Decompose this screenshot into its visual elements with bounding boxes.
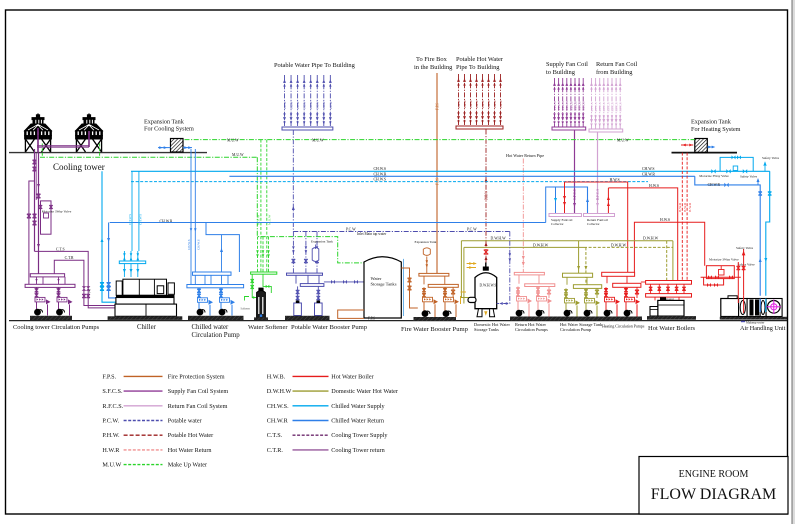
- svg-text:CH.W.R: CH.W.R: [374, 172, 387, 176]
- svg-text:P.H.W: P.H.W: [485, 190, 489, 200]
- svg-text:P.C.W: P.C.W: [289, 101, 293, 109]
- svg-text:F.P.S: F.P.S: [368, 317, 375, 321]
- svg-text:Potable Hot Water: Potable Hot Water: [456, 56, 504, 63]
- svg-text:P.H.W: P.H.W: [469, 100, 473, 108]
- svg-text:P.C.W: P.C.W: [316, 101, 320, 109]
- svg-text:P.C.W: P.C.W: [467, 227, 477, 231]
- svg-text:FLOW DIAGRAM: FLOW DIAGRAM: [651, 486, 776, 503]
- svg-text:D.W.H.W: D.W.H.W: [643, 237, 659, 241]
- svg-text:H.W.R: H.W.R: [678, 202, 682, 212]
- svg-text:Expansion Tank: Expansion Tank: [144, 119, 185, 126]
- svg-text:P.C.W: P.C.W: [329, 101, 333, 109]
- svg-text:S.F.C.S: S.F.C.S: [582, 101, 586, 110]
- svg-text:M.U.W: M.U.W: [617, 139, 629, 143]
- svg-text:Safety Valve: Safety Valve: [736, 246, 754, 250]
- svg-text:P.C.W: P.C.W: [346, 227, 356, 231]
- svg-text:Cooling Tower return: Cooling Tower return: [331, 447, 384, 454]
- svg-text:M.U.W: M.U.W: [312, 139, 324, 143]
- svg-text:Safety Valve: Safety Valve: [740, 175, 758, 179]
- svg-text:M.U.W: M.U.W: [268, 214, 272, 225]
- svg-text:Hot Water Boilers: Hot Water Boilers: [648, 325, 695, 332]
- svg-text:CH.W.S: CH.W.S: [197, 239, 201, 250]
- svg-text:P.C.W: P.C.W: [303, 101, 307, 109]
- svg-text:For Cooling System: For Cooling System: [144, 126, 194, 133]
- svg-text:F.P.S.: F.P.S.: [102, 373, 116, 380]
- svg-text:D.W.H.W: D.W.H.W: [267, 388, 292, 395]
- svg-text:CH.W.S: CH.W.S: [187, 239, 191, 250]
- svg-text:Chilled water: Chilled water: [192, 324, 230, 331]
- svg-text:Cooling Tower Supply: Cooling Tower Supply: [331, 432, 388, 439]
- svg-text:P.H.W: P.H.W: [487, 100, 491, 108]
- svg-text:Domestic Water Hot Water: Domestic Water Hot Water: [331, 388, 398, 395]
- svg-text:Inlet Main tap water: Inlet Main tap water: [357, 232, 387, 236]
- svg-text:Hot Water Return: Hot Water Return: [168, 447, 212, 454]
- svg-text:S.F.C.S.: S.F.C.S.: [102, 388, 123, 395]
- svg-text:P.H.W: P.H.W: [463, 100, 467, 108]
- svg-text:Safety Valve: Safety Valve: [738, 263, 756, 267]
- svg-text:Chilled Water Supply: Chilled Water Supply: [331, 403, 385, 410]
- svg-text:P.C.W: P.C.W: [296, 101, 300, 109]
- svg-text:R.F.C.S.: R.F.C.S.: [102, 403, 123, 410]
- svg-text:Cooling tower Circulation Pump: Cooling tower Circulation Pumps: [13, 324, 100, 331]
- svg-text:CH.W.S: CH.W.S: [642, 167, 655, 171]
- svg-text:Supply Fan Coil: Supply Fan Coil: [546, 61, 588, 68]
- svg-text:D.W.H.W: D.W.H.W: [491, 237, 507, 241]
- svg-text:D.W.H.W.S.: D.W.H.W.S.: [480, 284, 498, 288]
- svg-text:Expansion Tank: Expansion Tank: [691, 119, 732, 126]
- svg-text:Softener: Softener: [241, 308, 251, 311]
- svg-text:P.C.W: P.C.W: [283, 101, 287, 109]
- svg-text:CH.W.S: CH.W.S: [128, 214, 132, 225]
- svg-text:CH.W.S.: CH.W.S.: [267, 403, 289, 410]
- svg-text:Motorize 3Way Valve: Motorize 3Way Valve: [699, 174, 729, 178]
- svg-text:C.T.R: C.T.R: [65, 256, 74, 260]
- svg-text:Collector: Collector: [551, 222, 564, 226]
- svg-text:Return Fan Coil System: Return Fan Coil System: [168, 403, 228, 410]
- svg-text:H.W.S: H.W.S: [610, 178, 620, 182]
- svg-text:P.H.W.: P.H.W.: [102, 432, 120, 439]
- svg-text:H.W.B.: H.W.B.: [267, 373, 286, 380]
- svg-text:Fire Water Booster Pump: Fire Water Booster Pump: [401, 326, 469, 333]
- svg-text:Water Softener: Water Softener: [248, 324, 288, 331]
- svg-text:F.P.S: F.P.S: [436, 103, 440, 110]
- svg-text:S.F.C.S: S.F.C.S: [573, 189, 577, 200]
- svg-text:P.C.W: P.C.W: [309, 101, 313, 109]
- svg-text:CH.W.R: CH.W.R: [642, 172, 655, 176]
- svg-text:M.U.W: M.U.W: [257, 214, 261, 225]
- svg-text:Expansion Tank: Expansion Tank: [415, 240, 437, 244]
- svg-text:C.T.S.: C.T.S.: [267, 432, 283, 439]
- svg-text:Makeup water: Makeup water: [746, 321, 765, 325]
- svg-text:Heating Circulation Pumps: Heating Circulation Pumps: [602, 325, 645, 329]
- svg-text:P.C.W.: P.C.W.: [102, 418, 119, 425]
- svg-text:P.C.W: P.C.W: [322, 101, 326, 109]
- svg-text:Potable Hot Water: Potable Hot Water: [168, 432, 213, 439]
- svg-text:Storage Tanks: Storage Tanks: [474, 327, 499, 332]
- svg-text:Circulation Pump: Circulation Pump: [560, 327, 592, 332]
- svg-text:H.W.S: H.W.S: [649, 184, 659, 188]
- svg-text:H.W.R: H.W.R: [683, 202, 687, 212]
- svg-text:H.W.S: H.W.S: [660, 218, 670, 222]
- svg-text:Collector: Collector: [587, 222, 600, 226]
- svg-text:Potable Water Booster Pump: Potable Water Booster Pump: [291, 324, 368, 331]
- svg-text:Supply Fan Coil System: Supply Fan Coil System: [168, 388, 229, 395]
- svg-text:Circulation Pumps: Circulation Pumps: [515, 327, 548, 332]
- svg-text:R.F.C.S: R.F.C.S: [619, 102, 623, 112]
- svg-text:M.U.W: M.U.W: [227, 139, 239, 143]
- svg-text:P.H.W: P.H.W: [475, 100, 479, 108]
- svg-text:D.W.H.W: D.W.H.W: [533, 243, 549, 247]
- svg-text:H.W.R: H.W.R: [688, 202, 692, 212]
- svg-text:CH.W.R: CH.W.R: [267, 418, 289, 425]
- svg-text:C.T.R.: C.T.R.: [267, 447, 284, 454]
- svg-text:to Building: to Building: [546, 69, 576, 76]
- svg-text:from Building: from Building: [596, 69, 633, 76]
- svg-text:P.H.W: P.H.W: [481, 100, 485, 108]
- svg-text:Chiller: Chiller: [137, 324, 157, 331]
- svg-text:C.T.S: C.T.S: [56, 247, 65, 251]
- svg-text:Thermostat: Thermostat: [660, 297, 674, 301]
- svg-text:Hot Water Boiler: Hot Water Boiler: [331, 373, 373, 380]
- svg-text:R.F.C.S: R.F.C.S: [596, 189, 600, 200]
- svg-text:P.H.W: P.H.W: [499, 100, 503, 108]
- svg-text:P.H.W: P.H.W: [493, 100, 497, 108]
- svg-text:Pipe To Building: Pipe To Building: [456, 64, 500, 71]
- svg-text:CH.W.S: CH.W.S: [374, 167, 387, 171]
- svg-text:Safety Valve: Safety Valve: [762, 156, 780, 160]
- svg-text:Chilled Water Return: Chilled Water Return: [331, 418, 384, 425]
- svg-text:M.U.W: M.U.W: [102, 462, 121, 469]
- svg-text:Motorize 3Way Valve: Motorize 3Way Valve: [42, 210, 72, 214]
- svg-text:CH.W.R: CH.W.R: [708, 183, 721, 187]
- svg-text:in the Building: in the Building: [414, 64, 453, 71]
- svg-text:Cooling tower: Cooling tower: [53, 162, 105, 172]
- svg-text:Fire Protection System: Fire Protection System: [168, 373, 225, 380]
- svg-text:Storage Tanks: Storage Tanks: [371, 282, 397, 287]
- svg-text:H.W.R: H.W.R: [102, 447, 120, 454]
- svg-text:For Heating System: For Heating System: [691, 126, 741, 133]
- svg-text:CH.W.S: CH.W.S: [139, 214, 143, 225]
- svg-text:Expansion Tank: Expansion Tank: [311, 240, 333, 244]
- svg-text:Water: Water: [371, 276, 382, 281]
- svg-text:Potable water: Potable water: [168, 418, 202, 425]
- svg-text:M.U.W: M.U.W: [232, 153, 244, 157]
- svg-text:Circulation Pump: Circulation Pump: [192, 332, 241, 339]
- svg-text:To Fire Box: To Fire Box: [416, 56, 448, 63]
- svg-text:Hot Water Return Pipe: Hot Water Return Pipe: [506, 153, 544, 158]
- svg-text:Air Handling Unit: Air Handling Unit: [740, 325, 786, 332]
- svg-text:CH.W.S: CH.W.S: [374, 178, 387, 182]
- svg-text:D.W.H.W: D.W.H.W: [611, 243, 627, 247]
- svg-text:T.: T.: [89, 290, 92, 294]
- svg-text:Return Fan Coil: Return Fan Coil: [596, 61, 637, 68]
- svg-text:P.H.W: P.H.W: [457, 100, 461, 108]
- svg-text:ENGINE ROOM: ENGINE ROOM: [679, 469, 749, 480]
- svg-text:Make Up Water: Make Up Water: [168, 462, 207, 469]
- svg-text:Potable Water Pipe To Building: Potable Water Pipe To Building: [274, 62, 356, 69]
- svg-text:Motorize 3Way Valve: Motorize 3Way Valve: [709, 258, 739, 262]
